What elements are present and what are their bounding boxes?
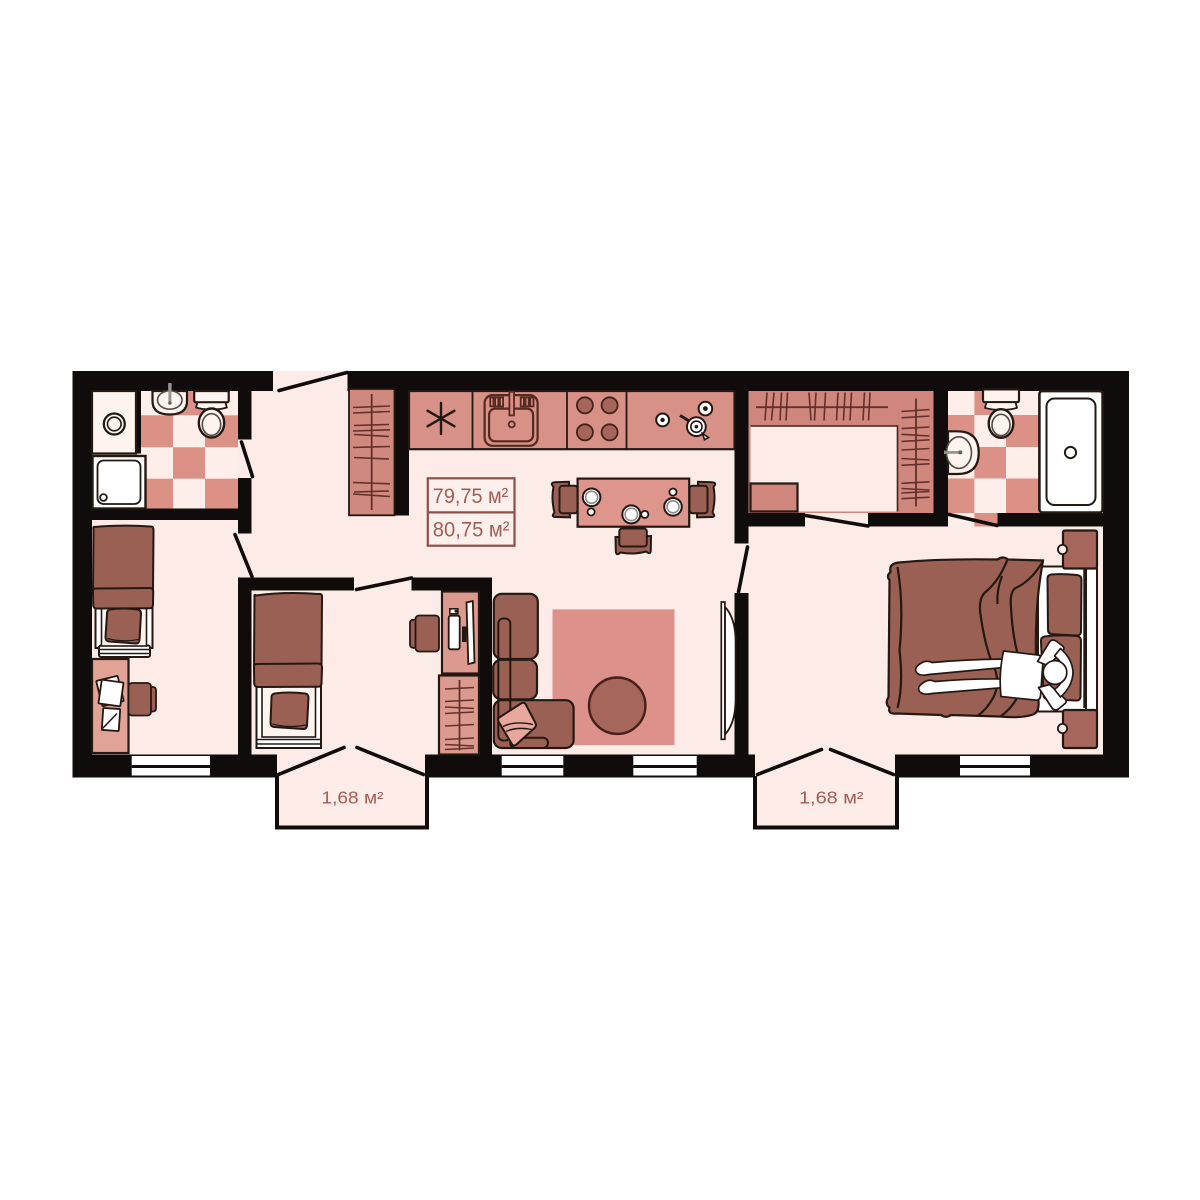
svg-text:80,75 м²: 80,75 м² — [433, 517, 510, 541]
svg-text:1,68 м²: 1,68 м² — [799, 788, 864, 808]
svg-text:1,68 м²: 1,68 м² — [322, 788, 384, 808]
svg-text:79,75 м²: 79,75 м² — [433, 484, 509, 508]
